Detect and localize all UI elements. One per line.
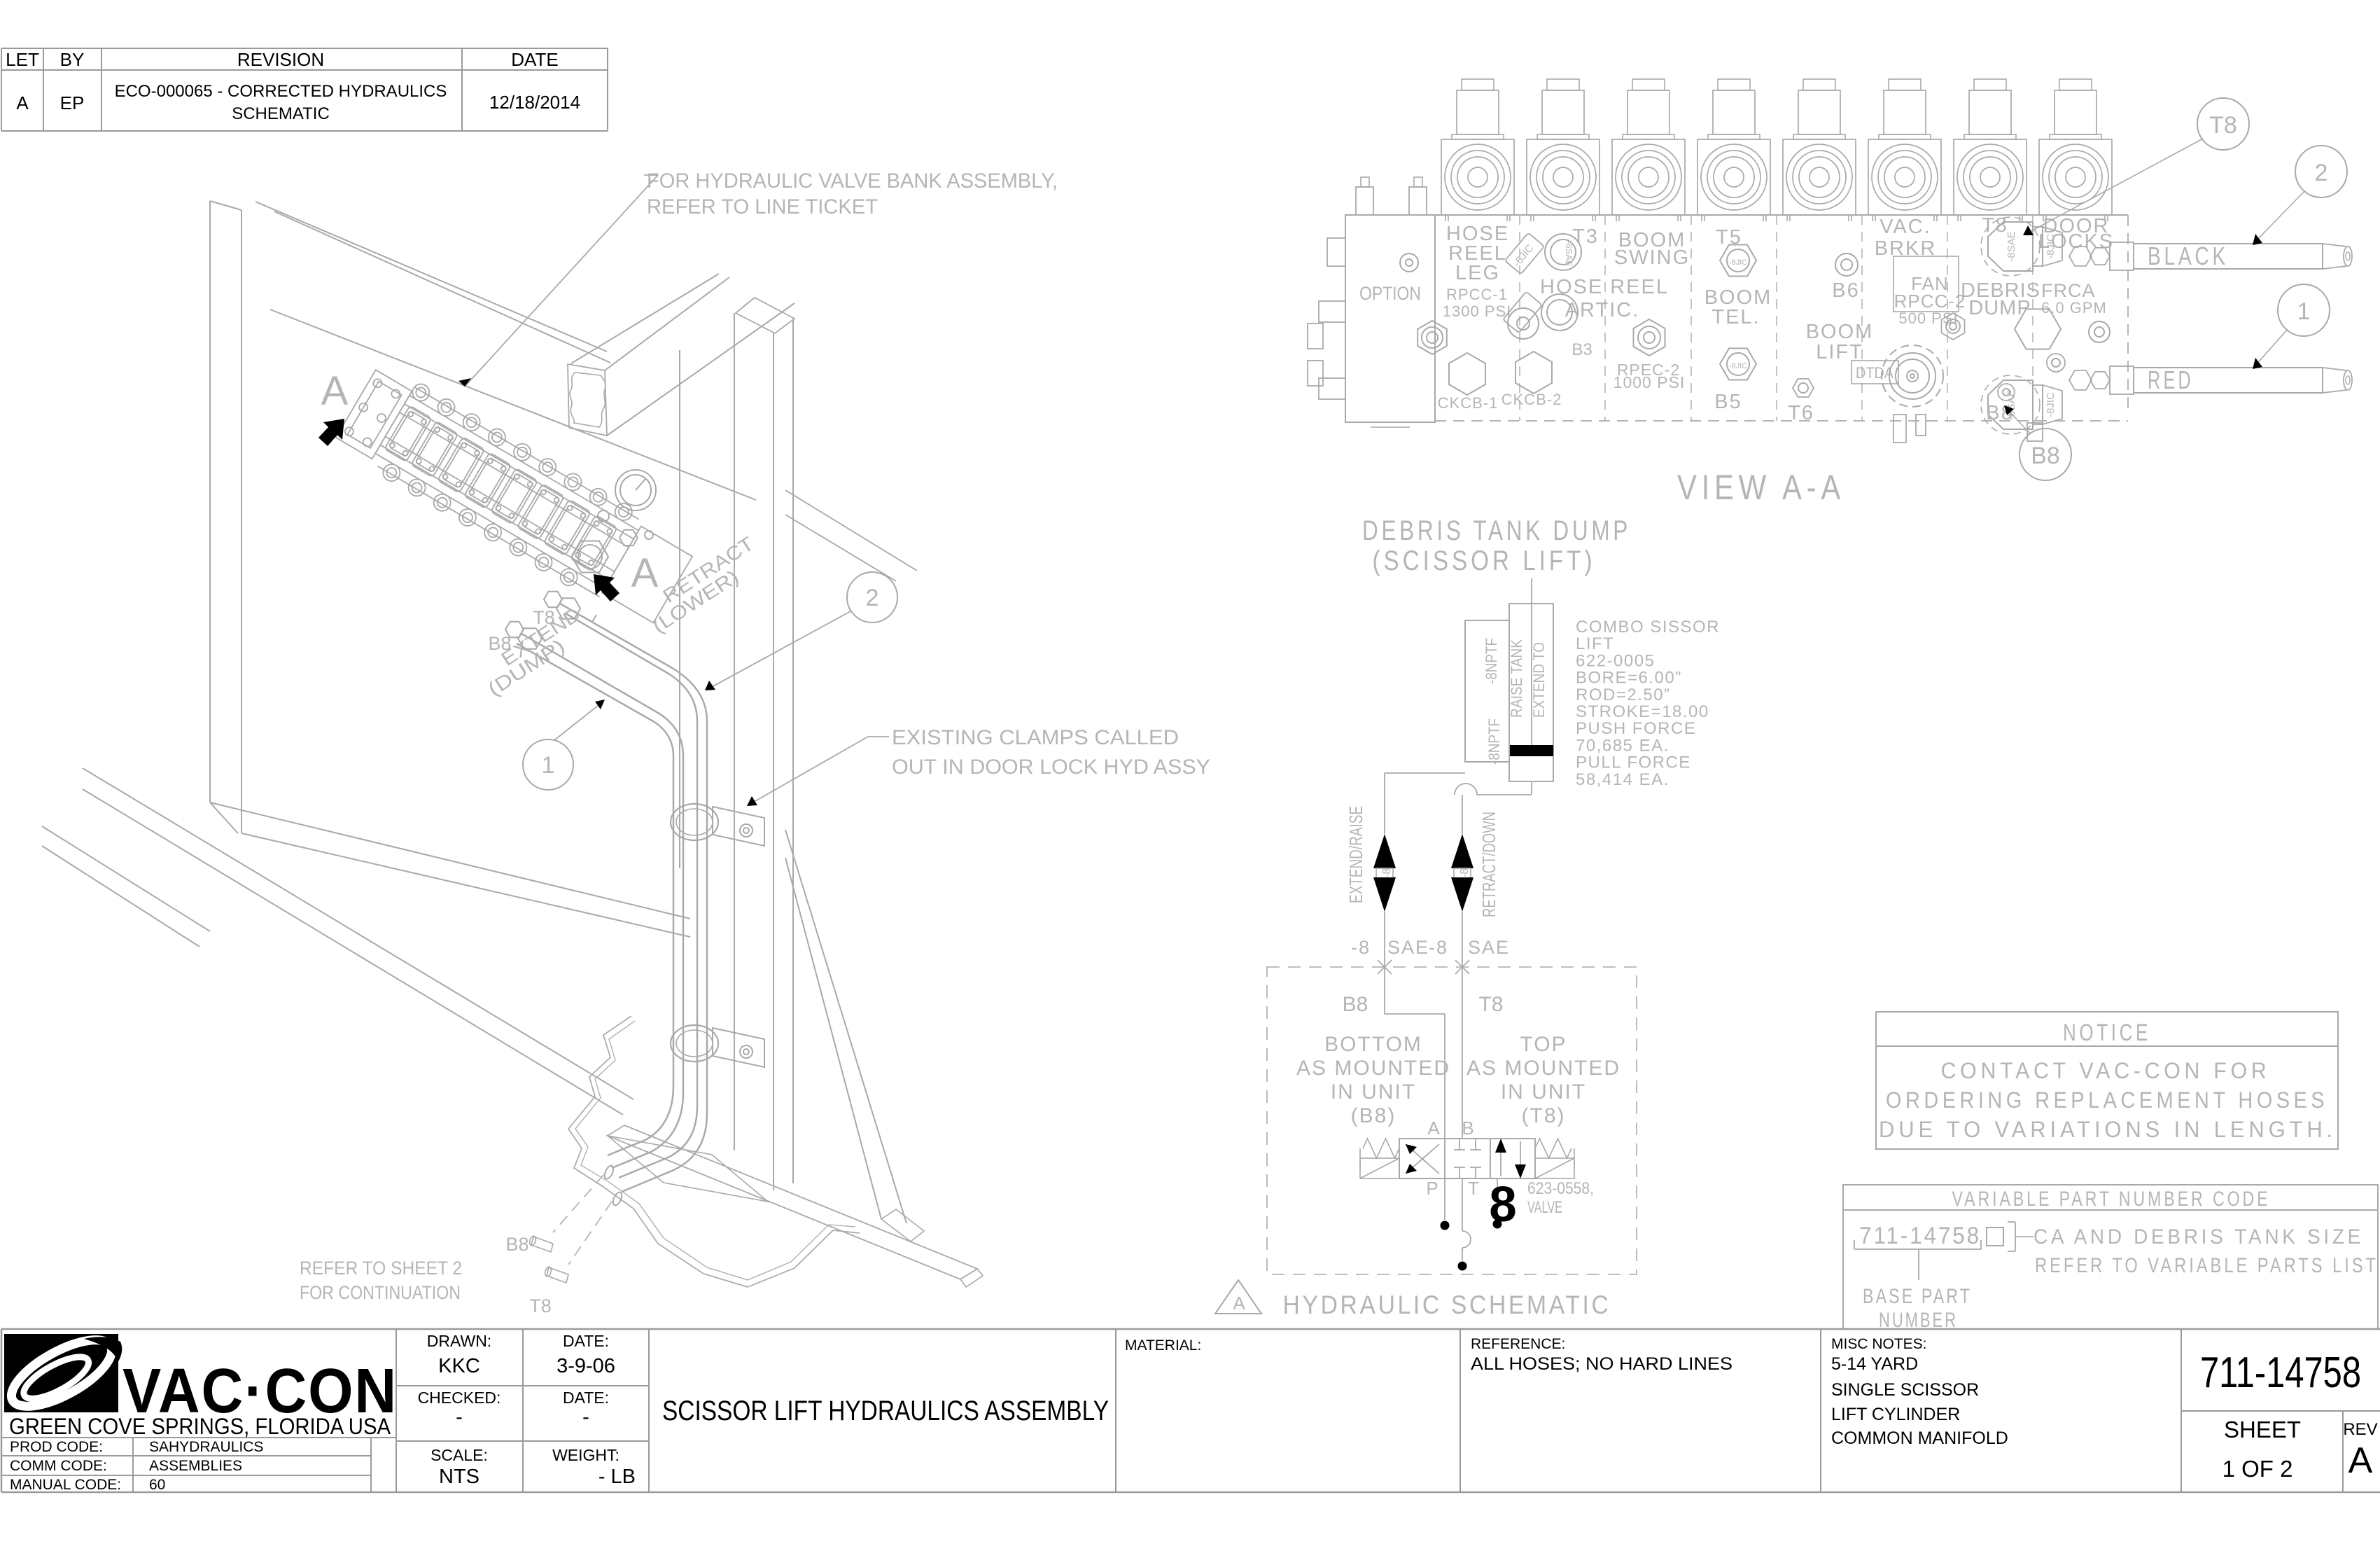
svg-text:T8: T8	[1478, 993, 1503, 1016]
svg-text:LET: LET	[6, 49, 39, 70]
svg-text:VALVE: VALVE	[1527, 1198, 1562, 1217]
svg-text:DUE TO VARIATIONS IN LENGTH.: DUE TO VARIATIONS IN LENGTH.	[1879, 1117, 2337, 1142]
svg-text:PUSH FORCE: PUSH FORCE	[1576, 719, 1696, 738]
svg-text:SCALE:: SCALE:	[430, 1446, 488, 1464]
svg-text:NTS: NTS	[439, 1466, 479, 1488]
svg-text:AS MOUNTED: AS MOUNTED	[1466, 1057, 1620, 1080]
svg-text:TOP: TOP	[1520, 1033, 1567, 1056]
svg-text:BOOM: BOOM	[1806, 321, 1874, 343]
svg-text:SHEET: SHEET	[2224, 1417, 2301, 1442]
svg-text:- LB: - LB	[598, 1466, 636, 1488]
svg-text:RPCC-2: RPCC-2	[1894, 291, 1966, 312]
svg-text:-8JIC: -8JIC	[2045, 234, 2057, 259]
svg-text:OUT IN DOOR LOCK HYD ASSY: OUT IN DOOR LOCK HYD ASSY	[892, 756, 1210, 779]
svg-text:GREEN COVE SPRINGS, FLORIDA US: GREEN COVE SPRINGS, FLORIDA USA	[9, 1414, 391, 1439]
svg-text:BOTTOM: BOTTOM	[1324, 1033, 1422, 1056]
svg-text:T3: T3	[1572, 225, 1599, 248]
svg-text:1 OF 2: 1 OF 2	[2222, 1456, 2293, 1482]
svg-text:(SCISSOR LIFT): (SCISSOR LIFT)	[1373, 545, 1596, 576]
svg-text:EXTEND/RAISE: EXTEND/RAISE	[1345, 806, 1366, 903]
svg-text:-8: -8	[1459, 868, 1471, 878]
svg-text:DATE: DATE	[511, 49, 558, 70]
svg-text:-: -	[456, 1406, 463, 1428]
svg-text:A: A	[16, 92, 29, 113]
svg-text:B5: B5	[1714, 391, 1742, 413]
svg-text:PULL FORCE: PULL FORCE	[1576, 753, 1691, 772]
svg-text:T8: T8	[2209, 112, 2237, 139]
svg-text:58,414 EA.: 58,414 EA.	[1576, 770, 1669, 789]
svg-text:SCHEMATIC: SCHEMATIC	[232, 104, 330, 123]
svg-text:REFER TO SHEET 2: REFER TO SHEET 2	[300, 1258, 462, 1279]
svg-text:WEIGHT:: WEIGHT:	[552, 1446, 619, 1464]
svg-text:ASSEMBLIES: ASSEMBLIES	[149, 1458, 242, 1474]
svg-text:EXISTING CLAMPS CALLED: EXISTING CLAMPS CALLED	[892, 726, 1179, 749]
svg-text:DEBRIS TANK DUMP: DEBRIS TANK DUMP	[1362, 515, 1631, 546]
svg-text:SAE: SAE	[1387, 937, 1429, 958]
svg-text:622-0005: 622-0005	[1576, 651, 1655, 670]
svg-text:VAC.: VAC.	[1879, 216, 1931, 238]
svg-text:DTDA: DTDA	[1856, 364, 1893, 382]
svg-text:COMMON MANIFOLD: COMMON MANIFOLD	[1831, 1428, 2008, 1448]
svg-text:2: 2	[866, 585, 879, 611]
svg-text:TEL.: TEL.	[1711, 306, 1760, 328]
svg-text:CA AND DEBRIS TANK SIZE: CA AND DEBRIS TANK SIZE	[2033, 1225, 2364, 1249]
svg-text:DATE:: DATE:	[563, 1332, 609, 1350]
svg-text:ROD=2.50”: ROD=2.50”	[1576, 686, 1671, 704]
svg-text:A: A	[631, 550, 659, 596]
svg-text:B: B	[1462, 1118, 1473, 1139]
svg-text:LEG: LEG	[1455, 262, 1500, 284]
svg-text:(T8): (T8)	[1522, 1104, 1566, 1127]
svg-text:ORDERING REPLACEMENT HOSES: ORDERING REPLACEMENT HOSES	[1886, 1087, 2328, 1113]
svg-text:(B8): (B8)	[1351, 1104, 1396, 1127]
svg-text:HYDRAULIC SCHEMATIC: HYDRAULIC SCHEMATIC	[1283, 1291, 1611, 1319]
svg-text:T8: T8	[529, 1295, 552, 1316]
svg-text:BASE PART: BASE PART	[1863, 1285, 1972, 1308]
svg-text:B3: B3	[1571, 340, 1592, 359]
svg-text:REFER TO VARIABLE PARTS LIST: REFER TO VARIABLE PARTS LIST	[2035, 1254, 2379, 1277]
svg-text:B6: B6	[1832, 279, 1859, 302]
svg-text:SINGLE SCISSOR: SINGLE SCISSOR	[1831, 1380, 1979, 1400]
svg-text:1: 1	[542, 752, 555, 779]
svg-text:A: A	[1427, 1118, 1440, 1139]
svg-text:STROKE=18.00: STROKE=18.00	[1576, 702, 1709, 721]
svg-text:CKCB-2: CKCB-2	[1501, 391, 1562, 408]
svg-text:MISC NOTES:: MISC NOTES:	[1831, 1336, 1927, 1352]
svg-text:-8NPTF: -8NPTF	[1483, 638, 1500, 684]
svg-text:RETRACT/DOWN: RETRACT/DOWN	[1478, 812, 1499, 917]
svg-text:2: 2	[2315, 160, 2328, 186]
svg-text:REV: REV	[2343, 1420, 2377, 1439]
svg-text:-8JIC: -8JIC	[1729, 258, 1747, 267]
svg-text:FRCA: FRCA	[2041, 280, 2096, 301]
svg-text:-8JIC: -8JIC	[1729, 362, 1747, 370]
svg-text:623-0558,: 623-0558,	[1527, 1179, 1594, 1198]
svg-text:1300 PSI: 1300 PSI	[1443, 302, 1512, 320]
svg-text:A: A	[1233, 1293, 1245, 1314]
svg-text:SWING: SWING	[1614, 246, 1690, 269]
svg-text:P: P	[1426, 1178, 1438, 1199]
svg-text:IN UNIT: IN UNIT	[1501, 1080, 1586, 1104]
svg-text:BLACK: BLACK	[2148, 242, 2229, 270]
svg-text:70,685 EA.: 70,685 EA.	[1576, 736, 1669, 755]
svg-text:CKCB-1: CKCB-1	[1438, 394, 1499, 412]
svg-text:SAE: SAE	[1468, 937, 1510, 958]
svg-text:VARIABLE PART NUMBER CODE: VARIABLE PART NUMBER CODE	[1952, 1188, 2271, 1211]
svg-text:EXTEND TO: EXTEND TO	[1530, 642, 1548, 718]
svg-text:EP: EP	[60, 92, 85, 113]
svg-text:DATE:: DATE:	[563, 1389, 609, 1407]
svg-text:FOR CONTINUATION: FOR CONTINUATION	[300, 1282, 461, 1303]
svg-text:B8: B8	[2031, 443, 2060, 469]
svg-text:VIEW A-A: VIEW A-A	[1677, 468, 1845, 507]
svg-text:8: 8	[1489, 1177, 1517, 1232]
svg-text:B8: B8	[505, 1234, 528, 1255]
svg-text:A: A	[321, 368, 349, 414]
svg-text:1: 1	[2297, 298, 2311, 325]
svg-text:-8: -8	[1381, 868, 1393, 878]
svg-text:COMBO SISSOR: COMBO SISSOR	[1576, 618, 1720, 637]
svg-text:T6: T6	[1788, 402, 1814, 424]
svg-text:T: T	[1468, 1178, 1479, 1199]
svg-text:SAHYDRAULICS: SAHYDRAULICS	[149, 1439, 263, 1455]
svg-text:COMM CODE:: COMM CODE:	[10, 1458, 107, 1474]
svg-text:SCISSOR LIFT HYDRAULICS ASSEMB: SCISSOR LIFT HYDRAULICS ASSEMBLY	[662, 1396, 1109, 1426]
svg-text:ALL HOSES; NO HARD LINES: ALL HOSES; NO HARD LINES	[1471, 1354, 1732, 1374]
svg-text:REFERENCE:: REFERENCE:	[1471, 1336, 1565, 1352]
svg-text:NOTICE: NOTICE	[2063, 1020, 2151, 1046]
svg-text:AS MOUNTED: AS MOUNTED	[1296, 1057, 1450, 1080]
svg-text:KKC: KKC	[438, 1355, 480, 1377]
svg-text:DRAWN:: DRAWN:	[427, 1332, 491, 1350]
svg-text:BY: BY	[60, 49, 85, 70]
svg-text:711-14758: 711-14758	[1859, 1223, 1981, 1249]
svg-text:A: A	[2348, 1440, 2373, 1481]
svg-text:12/18/2014: 12/18/2014	[489, 92, 580, 113]
svg-text:IN UNIT: IN UNIT	[1331, 1080, 1416, 1104]
svg-text:711-14758: 711-14758	[2200, 1349, 2361, 1397]
svg-text:REFER TO LINE TICKET: REFER TO LINE TICKET	[647, 195, 878, 218]
svg-text:-8SAE: -8SAE	[2005, 231, 2017, 261]
svg-text:B8: B8	[1986, 402, 2013, 424]
svg-text:LIFT: LIFT	[1576, 634, 1614, 653]
svg-text:RAISE TANK: RAISE TANK	[1508, 639, 1525, 718]
svg-text:5-14 YARD: 5-14 YARD	[1831, 1354, 1918, 1374]
svg-text:CONTACT VAC-CON FOR: CONTACT VAC-CON FOR	[1941, 1058, 2271, 1083]
svg-text:HOSE REEL: HOSE REEL	[1540, 276, 1669, 298]
svg-text:-8: -8	[1429, 937, 1448, 958]
svg-text:MATERIAL:: MATERIAL:	[1125, 1337, 1201, 1354]
svg-text:-8JIC: -8JIC	[2045, 392, 2057, 417]
svg-text:60: 60	[149, 1477, 165, 1493]
svg-text:RPCC-1: RPCC-1	[1446, 286, 1508, 303]
svg-text:6.0 GPM: 6.0 GPM	[2041, 299, 2107, 317]
svg-text:BORE=6.00”: BORE=6.00”	[1576, 669, 1682, 688]
svg-text:MANUAL CODE:: MANUAL CODE:	[10, 1477, 121, 1493]
svg-text:-6SAE: -6SAE	[1564, 240, 1574, 267]
svg-text:CHECKED:: CHECKED:	[418, 1389, 501, 1407]
svg-text:-: -	[582, 1406, 589, 1428]
svg-text:ECO-000065 - CORRECTED HYDRAUL: ECO-000065 - CORRECTED HYDRAULICS	[115, 82, 447, 101]
svg-text:PROD CODE:: PROD CODE:	[10, 1439, 103, 1455]
svg-text:1000 PSI: 1000 PSI	[1613, 373, 1686, 391]
svg-text:-8: -8	[1351, 937, 1371, 958]
svg-text:REVISION: REVISION	[237, 49, 324, 70]
svg-text:LIFT CYLINDER: LIFT CYLINDER	[1831, 1405, 1960, 1424]
svg-text:B8: B8	[1343, 993, 1368, 1016]
svg-text:OPTION: OPTION	[1359, 283, 1421, 304]
svg-text:3-9-06: 3-9-06	[556, 1355, 615, 1377]
svg-text:FOR HYDRAULIC VALVE BANK ASSEM: FOR HYDRAULIC VALVE BANK ASSEMBLY,	[647, 169, 1058, 193]
svg-text:-8NPTF: -8NPTF	[1485, 718, 1503, 765]
svg-text:RED: RED	[2148, 366, 2194, 394]
